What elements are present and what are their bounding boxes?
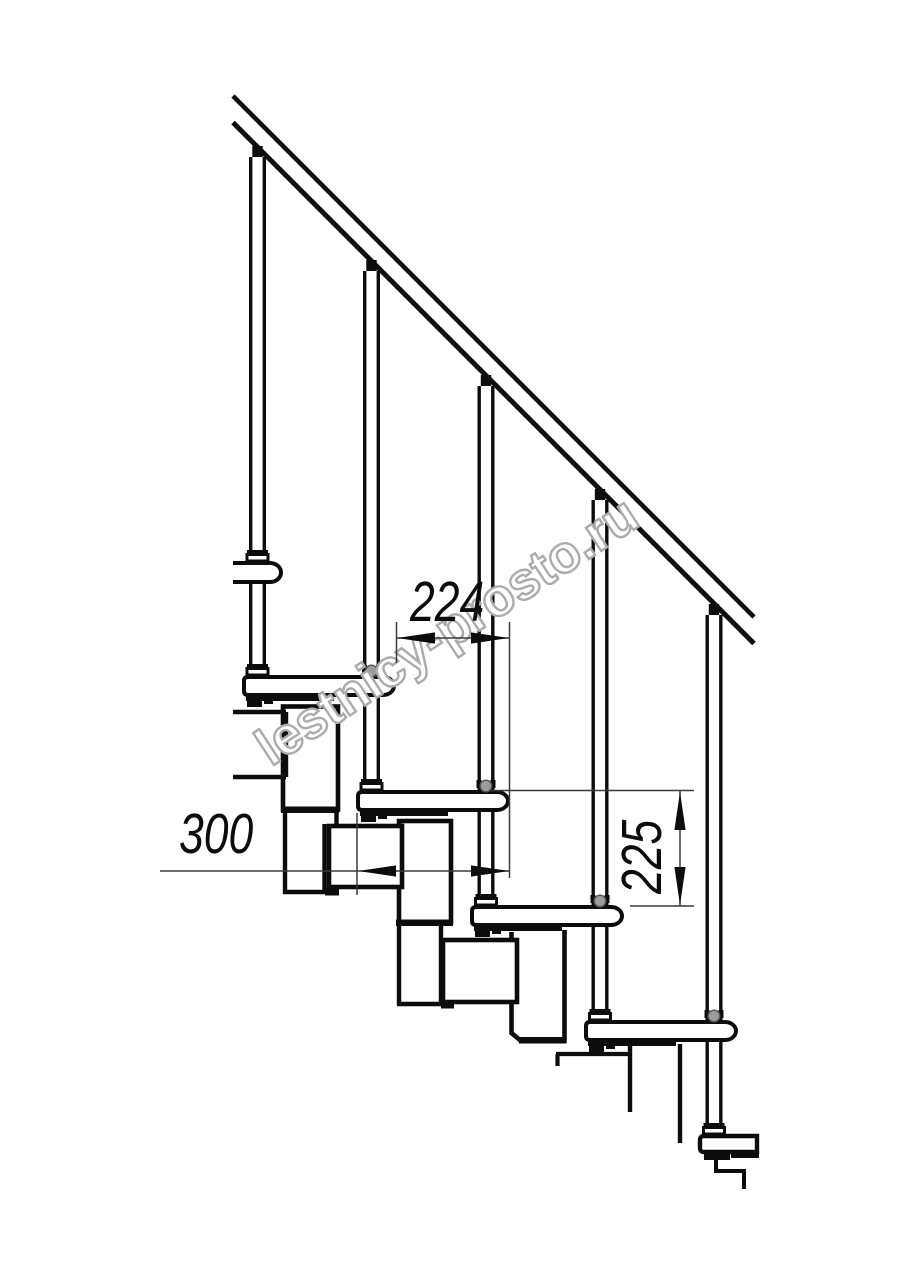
svg-text:224: 224: [409, 570, 484, 634]
svg-text:225: 225: [610, 819, 674, 895]
svg-text:300: 300: [179, 802, 253, 866]
